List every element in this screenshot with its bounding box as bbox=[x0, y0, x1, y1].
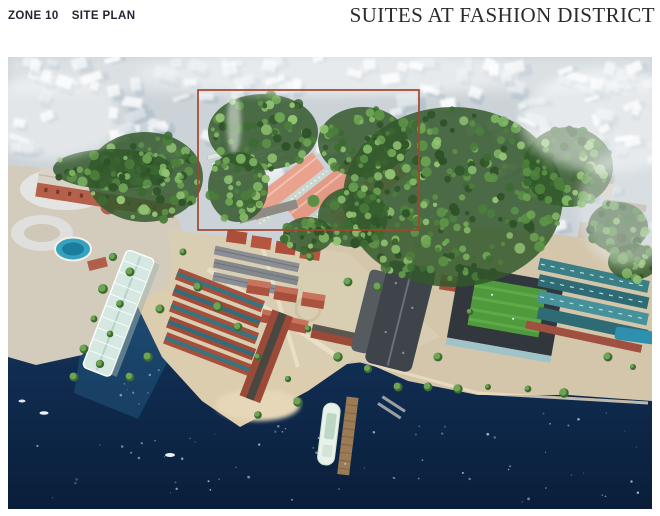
small-boat bbox=[165, 453, 175, 457]
small-boat bbox=[40, 411, 49, 415]
page-title: SUITES AT FASHION DISTRICT bbox=[350, 3, 655, 28]
site-plan-label: SITE PLAN bbox=[72, 10, 136, 22]
slide: ZONE 10 SITE PLAN SUITES AT FASHION DIST… bbox=[0, 0, 660, 516]
site-plan-rendering bbox=[8, 57, 652, 509]
smoke-plume bbox=[227, 93, 241, 153]
zone-site-plan-label: ZONE 10 SITE PLAN bbox=[8, 10, 135, 22]
header: ZONE 10 SITE PLAN SUITES AT FASHION DIST… bbox=[8, 0, 655, 57]
zone-label: ZONE 10 bbox=[8, 10, 59, 22]
